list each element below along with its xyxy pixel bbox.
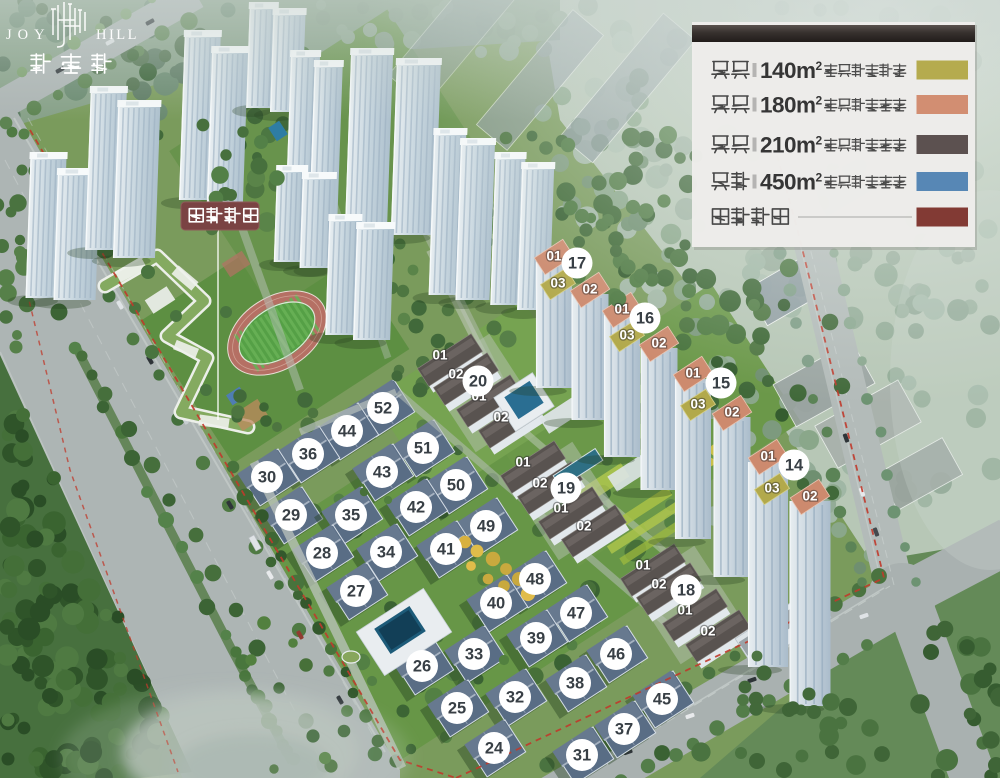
svg-text:42: 42 bbox=[407, 499, 425, 517]
svg-text:03: 03 bbox=[764, 481, 780, 496]
svg-text:JOY: JOY bbox=[6, 27, 51, 43]
svg-text:28: 28 bbox=[313, 545, 331, 563]
svg-text:49: 49 bbox=[477, 518, 495, 536]
svg-text:38: 38 bbox=[566, 675, 584, 693]
svg-text:51: 51 bbox=[414, 440, 432, 458]
svg-text:24: 24 bbox=[485, 740, 504, 758]
svg-text:39: 39 bbox=[527, 630, 545, 648]
svg-text:47: 47 bbox=[567, 605, 585, 623]
svg-text:48: 48 bbox=[526, 571, 544, 589]
svg-text:01: 01 bbox=[546, 249, 562, 264]
svg-text:03: 03 bbox=[550, 276, 566, 291]
svg-text:50: 50 bbox=[447, 477, 465, 495]
svg-text:02: 02 bbox=[724, 405, 739, 420]
svg-text:02: 02 bbox=[532, 476, 547, 491]
svg-text:31: 31 bbox=[573, 747, 591, 765]
svg-text:46: 46 bbox=[607, 646, 625, 664]
svg-text:01: 01 bbox=[515, 455, 531, 470]
svg-text:140m2: 140m2 bbox=[760, 58, 823, 83]
svg-text:29: 29 bbox=[282, 507, 300, 525]
svg-text:180m2: 180m2 bbox=[760, 93, 823, 118]
svg-text:01: 01 bbox=[760, 449, 776, 464]
svg-text:35: 35 bbox=[342, 507, 360, 525]
svg-text:36: 36 bbox=[299, 446, 317, 464]
svg-text:02: 02 bbox=[448, 367, 463, 382]
svg-text:02: 02 bbox=[576, 519, 591, 534]
svg-text:15: 15 bbox=[712, 375, 730, 393]
svg-text:45: 45 bbox=[653, 691, 671, 709]
svg-text:210m2: 210m2 bbox=[760, 133, 823, 158]
svg-text:44: 44 bbox=[338, 423, 357, 441]
svg-text:03: 03 bbox=[619, 328, 635, 343]
svg-text:37: 37 bbox=[615, 721, 633, 739]
svg-text:40: 40 bbox=[487, 595, 505, 613]
svg-text:18: 18 bbox=[677, 582, 695, 600]
svg-text:41: 41 bbox=[437, 541, 455, 559]
svg-text:32: 32 bbox=[506, 689, 524, 707]
svg-text:01: 01 bbox=[614, 302, 630, 317]
svg-text:02: 02 bbox=[700, 624, 715, 639]
svg-text:26: 26 bbox=[413, 658, 431, 676]
svg-text:30: 30 bbox=[258, 469, 276, 487]
svg-text:02: 02 bbox=[582, 282, 597, 297]
svg-text:34: 34 bbox=[377, 544, 396, 562]
svg-text:19: 19 bbox=[557, 480, 575, 498]
svg-text:450m2: 450m2 bbox=[760, 170, 823, 195]
svg-text:25: 25 bbox=[448, 700, 466, 718]
svg-text:01: 01 bbox=[432, 348, 448, 363]
svg-text:17: 17 bbox=[568, 255, 586, 273]
svg-text:27: 27 bbox=[347, 583, 365, 601]
svg-text:HILL: HILL bbox=[96, 27, 139, 43]
svg-text:02: 02 bbox=[651, 577, 666, 592]
svg-text:03: 03 bbox=[690, 397, 706, 412]
svg-text:01: 01 bbox=[635, 558, 651, 573]
svg-text:16: 16 bbox=[636, 310, 654, 328]
svg-text:01: 01 bbox=[685, 366, 701, 381]
svg-text:43: 43 bbox=[373, 464, 391, 482]
svg-text:20: 20 bbox=[469, 373, 487, 391]
svg-text:33: 33 bbox=[465, 646, 483, 664]
svg-text:02: 02 bbox=[493, 410, 508, 425]
svg-text:14: 14 bbox=[785, 457, 804, 475]
svg-text:52: 52 bbox=[374, 400, 392, 418]
svg-text:02: 02 bbox=[802, 489, 817, 504]
svg-text:02: 02 bbox=[651, 336, 666, 351]
